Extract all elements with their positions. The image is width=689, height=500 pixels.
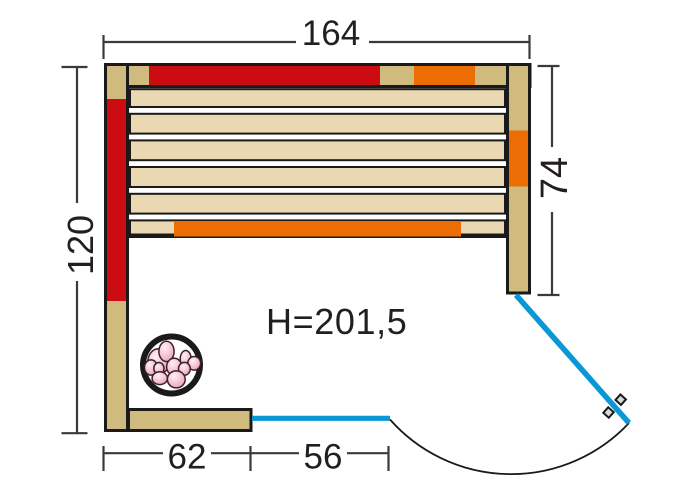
svg-text:H=201,5: H=201,5	[266, 301, 407, 342]
svg-text:74: 74	[534, 157, 576, 199]
svg-text:120: 120	[60, 215, 101, 275]
svg-text:164: 164	[302, 14, 360, 53]
svg-text:62: 62	[168, 438, 207, 477]
svg-text:56: 56	[304, 438, 343, 477]
